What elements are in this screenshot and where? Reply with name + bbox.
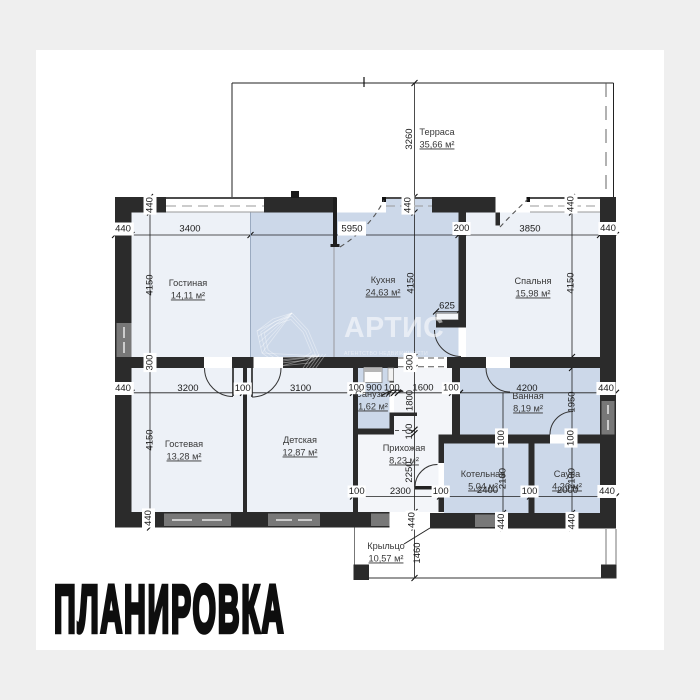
svg-text:4150: 4150 [566,272,577,293]
svg-text:13,28 м²: 13,28 м² [167,452,202,462]
svg-text:440: 440 [143,510,154,526]
svg-text:14,11 м²: 14,11 м² [171,291,205,301]
svg-text:300: 300 [405,355,416,371]
svg-text:300: 300 [145,355,156,371]
svg-text:10,57 м²: 10,57 м² [369,554,404,564]
svg-text:Крыльцо: Крыльцо [367,541,404,551]
svg-text:8,19 м²: 8,19 м² [513,404,543,414]
svg-text:3400: 3400 [179,224,200,235]
svg-text:100: 100 [349,486,365,497]
svg-text:3850: 3850 [519,224,540,235]
svg-text:3100: 3100 [290,383,311,394]
svg-text:100: 100 [235,383,251,394]
svg-text:4150: 4150 [145,429,156,450]
svg-text:2300: 2300 [390,486,411,497]
svg-text:Прихожая: Прихожая [383,443,426,453]
svg-text:4150: 4150 [406,272,417,293]
svg-text:440: 440 [115,224,131,235]
svg-text:12,87 м²: 12,87 м² [283,448,318,458]
svg-text:Детская: Детская [283,435,317,445]
svg-text:100: 100 [522,486,538,497]
svg-text:440: 440 [115,383,131,394]
svg-text:35,66 м²: 35,66 м² [420,140,455,150]
svg-text:200: 200 [454,223,470,234]
svg-text:Сауна: Сауна [554,469,581,479]
svg-text:100: 100 [496,430,507,446]
svg-text:15,98 м²: 15,98 м² [516,289,551,299]
svg-text:5950: 5950 [341,224,362,235]
svg-text:3200: 3200 [177,383,198,394]
svg-text:440: 440 [403,197,414,213]
svg-text:4,26 м²: 4,26 м² [552,482,582,492]
svg-text:100: 100 [404,424,415,440]
svg-text:Котельная: Котельная [461,469,505,479]
svg-text:440: 440 [598,383,614,394]
svg-text:440: 440 [600,223,616,234]
svg-text:100: 100 [433,486,449,497]
svg-text:Ванная: Ванная [512,391,543,401]
svg-text:8,23 м²: 8,23 м² [389,456,419,466]
svg-text:625: 625 [439,301,455,312]
svg-text:Кухня: Кухня [371,275,396,285]
svg-text:АРТИС: АРТИС [344,312,444,344]
svg-text:Санузел: Санузел [355,389,391,399]
svg-text:1600: 1600 [412,383,433,394]
svg-text:5,04 м²: 5,04 м² [468,482,498,492]
svg-text:440: 440 [566,196,577,212]
svg-text:1460: 1460 [412,542,423,563]
svg-text:Гостевая: Гостевая [165,439,203,449]
svg-text:440: 440 [599,486,615,497]
svg-text:Гостиная: Гостиная [169,278,208,288]
svg-text:100: 100 [566,430,577,446]
svg-text:440: 440 [496,514,507,530]
svg-text:Терраса: Терраса [419,127,455,137]
svg-text:4150: 4150 [145,274,156,295]
svg-text:3260: 3260 [404,128,415,149]
svg-text:1950: 1950 [567,391,578,412]
svg-text:24,63 м²: 24,63 м² [366,288,401,298]
svg-text:Спальня: Спальня [515,276,552,286]
svg-text:1,62 м²: 1,62 м² [358,402,388,412]
svg-text:100: 100 [443,383,459,394]
svg-text:440: 440 [145,197,156,213]
svg-text:440: 440 [407,512,418,528]
svg-text:1800: 1800 [405,390,416,411]
svg-text:440: 440 [567,514,578,530]
